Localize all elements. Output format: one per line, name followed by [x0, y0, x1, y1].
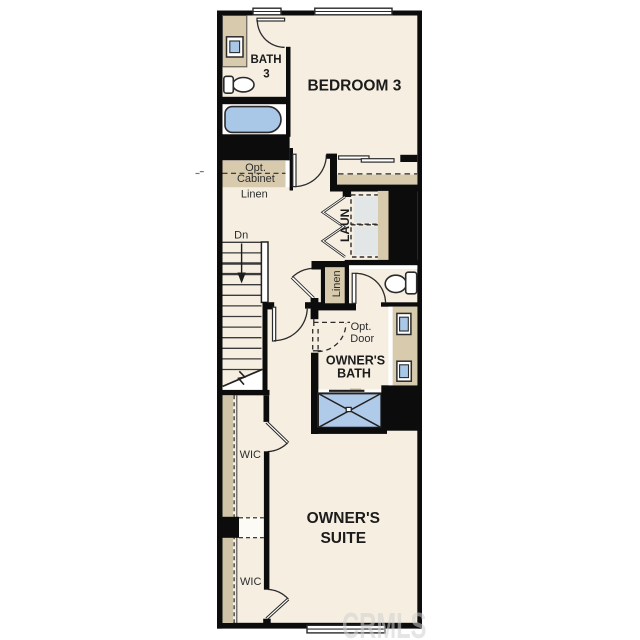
svg-text:Door: Door — [350, 333, 374, 345]
svg-text:SUITE: SUITE — [320, 530, 366, 547]
svg-text:BATH: BATH — [250, 54, 281, 66]
svg-text:Linen: Linen — [331, 270, 343, 297]
svg-text:LAUN: LAUN — [338, 209, 352, 242]
svg-text:Cabinet: Cabinet — [237, 173, 275, 185]
svg-text:3: 3 — [263, 69, 269, 81]
svg-text:Dn: Dn — [234, 229, 248, 241]
svg-text:Opt.: Opt. — [245, 162, 266, 174]
svg-text:OWNER'S: OWNER'S — [307, 510, 380, 527]
svg-text:BEDROOM 3: BEDROOM 3 — [307, 78, 401, 95]
svg-text:OWNER'S: OWNER'S — [326, 354, 385, 368]
svg-text:WIC: WIC — [240, 449, 261, 461]
svg-text:Linen: Linen — [241, 189, 268, 201]
svg-text:Opt.: Opt. — [351, 321, 372, 333]
svg-text:CRMLS: CRMLS — [342, 606, 426, 640]
svg-text:BATH: BATH — [337, 367, 371, 381]
svg-text:WIC: WIC — [240, 576, 261, 588]
